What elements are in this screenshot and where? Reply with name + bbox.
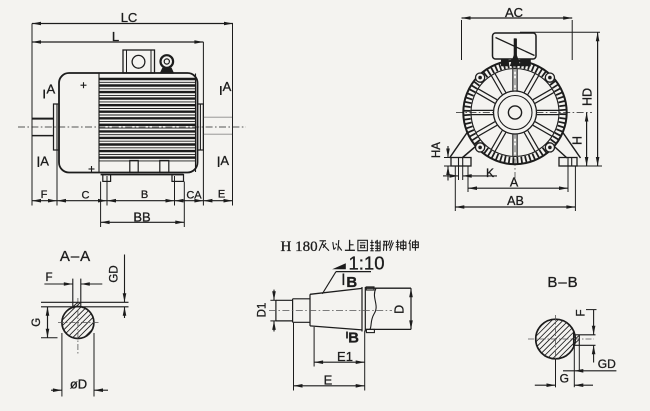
svg-text:H: H bbox=[570, 136, 584, 145]
svg-text:1:10: 1:10 bbox=[348, 253, 384, 274]
svg-text:A–A: A–A bbox=[60, 248, 91, 265]
svg-text:E: E bbox=[218, 189, 225, 201]
svg-text:F: F bbox=[45, 272, 52, 284]
svg-text:C: C bbox=[82, 190, 90, 202]
svg-text:LC: LC bbox=[121, 10, 138, 25]
svg-text:AC: AC bbox=[505, 5, 523, 20]
svg-text:G: G bbox=[560, 372, 569, 386]
svg-text:L: L bbox=[112, 29, 119, 44]
svg-text:D: D bbox=[393, 305, 407, 314]
svg-text:K: K bbox=[486, 166, 494, 180]
svg-text:øD: øD bbox=[70, 377, 87, 392]
svg-text:A: A bbox=[40, 154, 49, 169]
svg-text:B–B: B–B bbox=[547, 274, 578, 291]
svg-text:E: E bbox=[324, 372, 333, 387]
svg-text:G: G bbox=[31, 318, 43, 327]
svg-text:A: A bbox=[46, 82, 55, 97]
svg-text:F: F bbox=[41, 189, 48, 201]
svg-text:A: A bbox=[510, 176, 519, 190]
svg-text:B: B bbox=[346, 274, 357, 291]
svg-text:B: B bbox=[141, 189, 148, 201]
svg-text:E1: E1 bbox=[337, 349, 353, 364]
svg-text:CA: CA bbox=[186, 190, 202, 202]
svg-text:AB: AB bbox=[507, 194, 524, 208]
svg-text:BB: BB bbox=[133, 209, 150, 224]
svg-text:A: A bbox=[220, 153, 229, 168]
svg-text:A: A bbox=[223, 79, 232, 94]
svg-text:HA: HA bbox=[431, 142, 443, 158]
svg-text:HD: HD bbox=[581, 88, 595, 106]
svg-text:GD: GD bbox=[108, 265, 120, 282]
svg-text:H 180: H 180 bbox=[281, 239, 318, 255]
svg-text:GD: GD bbox=[598, 357, 616, 371]
svg-text:B: B bbox=[348, 330, 359, 347]
svg-text:D1: D1 bbox=[257, 303, 269, 318]
svg-text:F: F bbox=[575, 309, 587, 316]
